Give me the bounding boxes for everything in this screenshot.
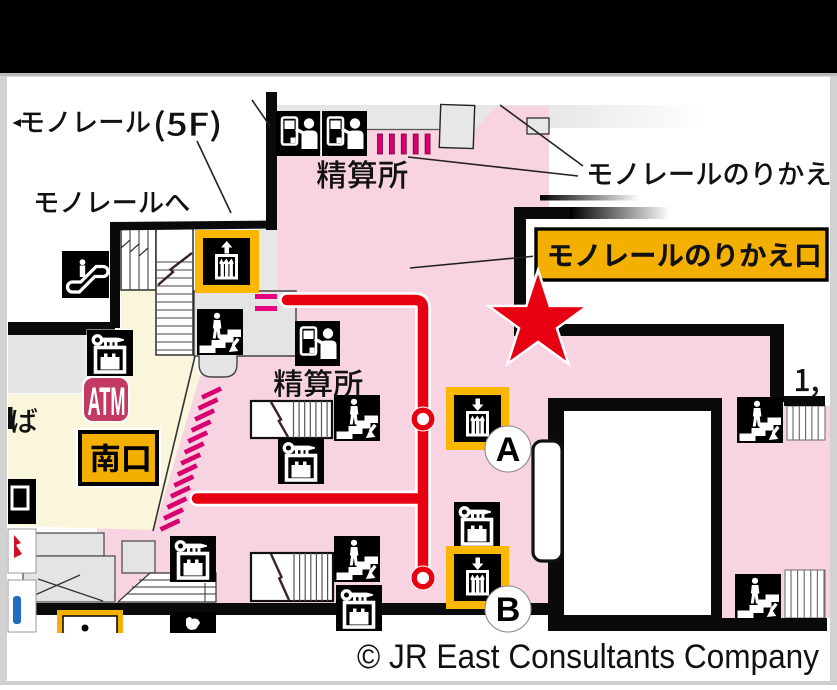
svg-text:© JR East Consultants Company: © JR East Consultants Company: [357, 638, 819, 676]
svg-text:A: A: [496, 431, 521, 469]
svg-text:B: B: [496, 591, 521, 629]
svg-text:ATM: ATM: [88, 380, 126, 424]
